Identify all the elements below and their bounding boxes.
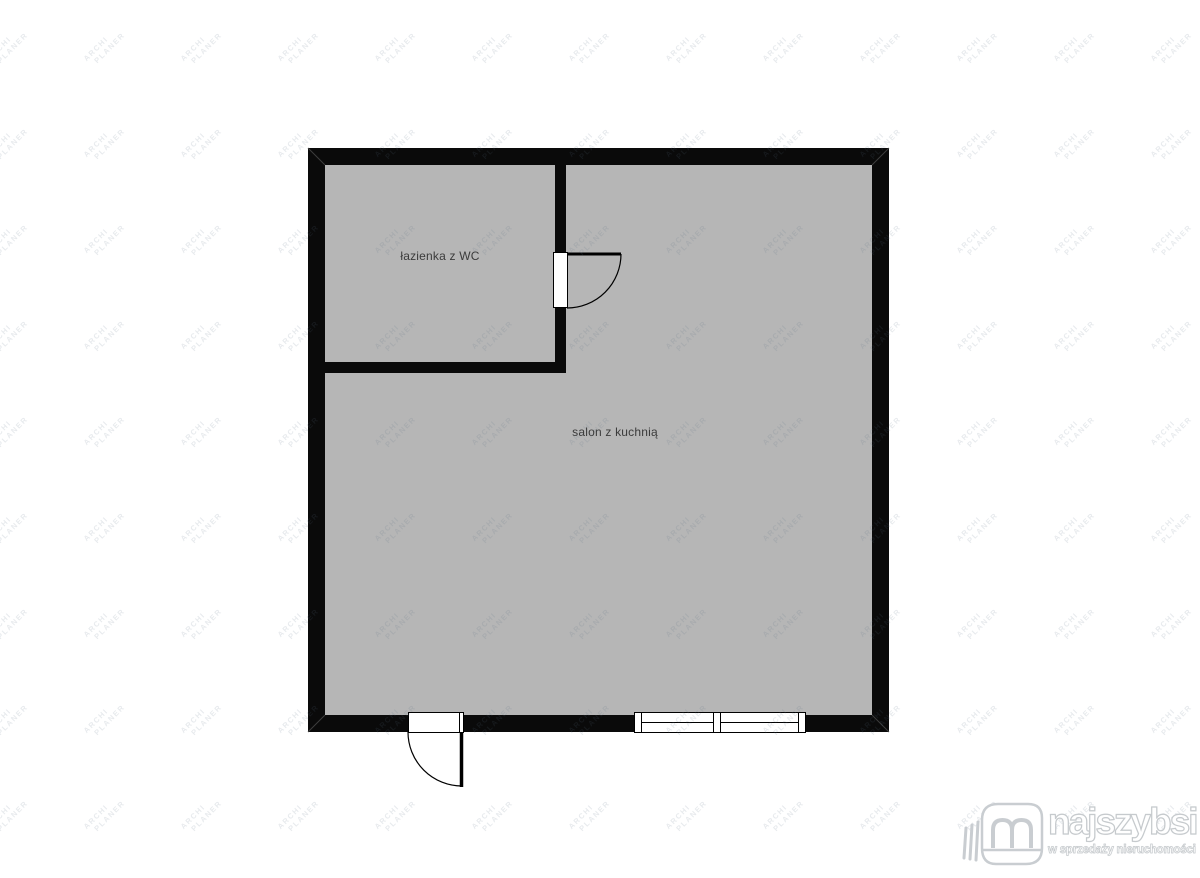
- bathroom-wall-horizontal: [318, 362, 566, 373]
- logo-pages-icon: [970, 825, 972, 859]
- room-label-bathroom: łazienka z WC: [325, 249, 555, 263]
- floor-area: [325, 165, 872, 715]
- floorplan-page: ARCHIPLANERARCHIPLANERARCHIPLANERARCHIPL…: [0, 0, 1200, 878]
- logo-subtitle: w sprzedaży nieruchomości: [1048, 844, 1197, 857]
- logo-text-block: najszybsi w sprzedaży nieruchomości: [1048, 796, 1197, 857]
- agency-logo: najszybsi w sprzedaży nieruchomości: [960, 796, 1197, 872]
- logo-pages-icon: [976, 822, 978, 860]
- entrance-door-swing-arc: [408, 732, 462, 786]
- book-m-logo-icon: [960, 796, 1044, 872]
- floorplan-drawing: [0, 0, 1200, 878]
- bathroom-wall-vertical-upper: [555, 158, 566, 253]
- logo-title: najszybsi: [1048, 802, 1197, 842]
- room-label-salon-kitchen: salon z kuchnią: [325, 425, 905, 439]
- logo-pages-icon: [964, 828, 966, 858]
- entrance-door-opening: [409, 713, 464, 733]
- bathroom-door-opening: [554, 253, 568, 308]
